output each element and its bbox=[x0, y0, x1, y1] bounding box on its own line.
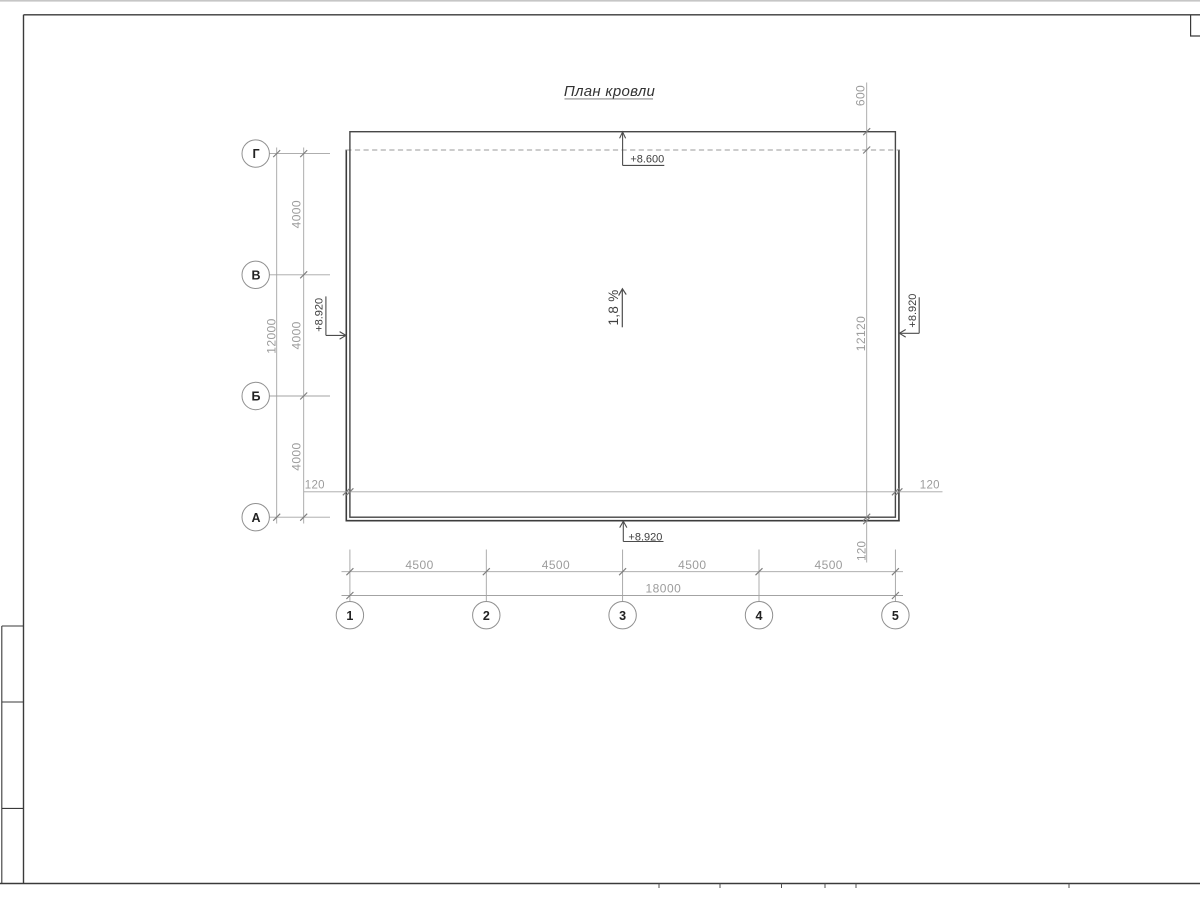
svg-text:120: 120 bbox=[305, 479, 325, 491]
svg-text:120: 120 bbox=[856, 541, 868, 561]
svg-text:Б: Б bbox=[252, 390, 261, 404]
svg-text:12120: 12120 bbox=[854, 316, 868, 351]
svg-text:3: 3 bbox=[619, 609, 626, 623]
svg-text:120: 120 bbox=[920, 479, 940, 491]
svg-text:5: 5 bbox=[892, 609, 899, 623]
svg-text:Г: Г bbox=[252, 147, 259, 161]
svg-text:4000: 4000 bbox=[289, 200, 303, 228]
svg-text:4500: 4500 bbox=[678, 558, 706, 572]
svg-text:4500: 4500 bbox=[542, 558, 570, 572]
svg-text:+8.920: +8.920 bbox=[628, 531, 662, 543]
svg-text:4000: 4000 bbox=[289, 321, 303, 349]
svg-text:600: 600 bbox=[853, 85, 867, 106]
svg-text:4500: 4500 bbox=[815, 558, 843, 572]
svg-text:+8.600: +8.600 bbox=[630, 153, 664, 165]
svg-text:4: 4 bbox=[756, 609, 763, 623]
svg-text:1: 1 bbox=[346, 609, 353, 623]
svg-text:4500: 4500 bbox=[405, 558, 433, 572]
svg-text:В: В bbox=[251, 268, 260, 282]
svg-text:А: А bbox=[251, 511, 260, 525]
svg-text:4000: 4000 bbox=[289, 442, 303, 470]
svg-text:План кровли: План кровли bbox=[564, 83, 656, 100]
svg-text:+8.920: +8.920 bbox=[313, 298, 325, 332]
svg-text:+8.920: +8.920 bbox=[907, 294, 919, 328]
svg-text:18000: 18000 bbox=[645, 581, 681, 595]
svg-text:1,8 %: 1,8 % bbox=[606, 289, 621, 325]
svg-text:2: 2 bbox=[483, 609, 490, 623]
svg-text:12000: 12000 bbox=[264, 318, 278, 353]
